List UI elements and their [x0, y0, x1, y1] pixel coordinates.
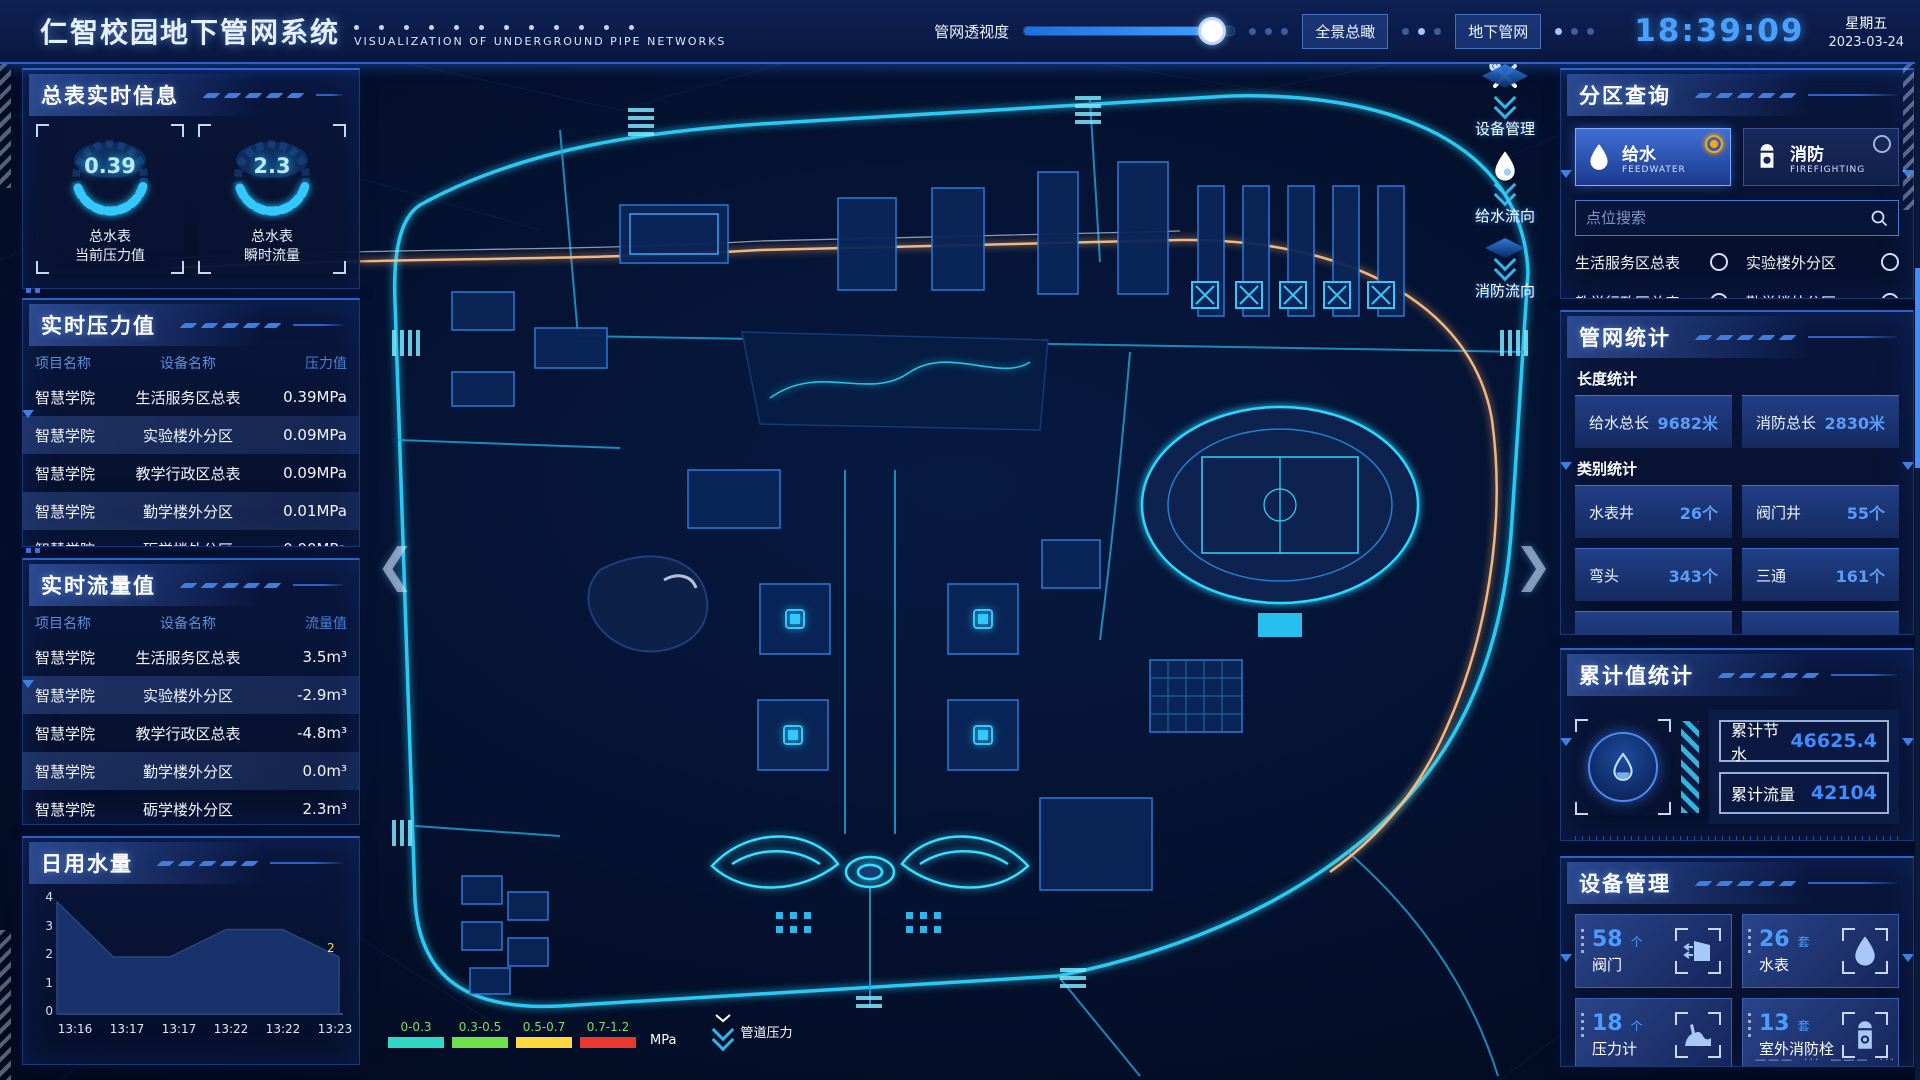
radio-unselected-icon[interactable]	[1873, 135, 1891, 153]
table-header: 项目名称设备名称流量值	[23, 608, 359, 638]
map-pan-right-arrow[interactable]: ❯	[1514, 538, 1553, 592]
slash-decoration	[1720, 673, 1817, 678]
daily-water-chart: 43 21 0 2	[23, 884, 359, 1020]
weekday: 星期五	[1845, 13, 1887, 33]
device-card-water-meter: 26套 水表	[1742, 914, 1899, 988]
legend-segment: 0.7-1.2	[580, 1020, 636, 1048]
table-row: 智慧学院实验楼外分区-2.9m³	[23, 676, 359, 714]
svg-text:2: 2	[327, 941, 335, 955]
clock: 18:39:09	[1634, 13, 1804, 49]
radio-unselected-icon[interactable]	[1710, 293, 1728, 299]
slash-decoration	[182, 583, 279, 588]
panel-title: 实时流量值	[41, 570, 156, 600]
stat-box: 阀门井55个	[1742, 485, 1899, 538]
gauge-label-line2: 瞬时流量	[198, 247, 346, 266]
pipe-opacity-slider[interactable]	[1023, 26, 1235, 36]
tab-sublabel: FEEDWATER	[1622, 165, 1686, 175]
slash-decoration	[159, 861, 256, 866]
edge-hazard-stripes	[0, 930, 11, 1080]
pressure-legend: 0-0.3 0.3-0.5 0.5-0.7 0.7-1.2 MPa 管道压力	[388, 1014, 792, 1048]
length-stats-label: 长度统计	[1577, 368, 1897, 389]
pipe-opacity-label: 管网透视度	[934, 21, 1009, 42]
zone-point-item[interactable]: 勤学楼外分区	[1746, 282, 1899, 299]
zone-point-item[interactable]: 生活服务区总表	[1575, 242, 1728, 282]
device-card-valve: 58个 阀门	[1575, 914, 1732, 988]
table-row: 智慧学院生活服务区总表0.39MPa	[23, 378, 359, 416]
table-row: 智慧学院生活服务区总表3.5m³	[23, 638, 359, 676]
slash-decoration	[1697, 93, 1794, 98]
panel-device-management: 设备管理 58个 阀门 26套 水表	[1560, 856, 1914, 1067]
panel-title: 设备管理	[1579, 868, 1671, 898]
stat-box-clipped	[1742, 611, 1899, 635]
stat-box: 消防总长2830米	[1742, 395, 1899, 448]
hydrant-icon	[1842, 1012, 1888, 1058]
pressure-gauge-icon	[1675, 1012, 1721, 1058]
tab-sublabel: FIREFIGHTING	[1790, 165, 1865, 175]
map-control-stack: 设备管理 给水流向 消防流向	[1446, 64, 1564, 305]
pipe-pressure-label: 管道压力	[740, 1022, 792, 1041]
panel-cumulative: 累计值统计 累计节水46625.4 累计流量42104	[1560, 648, 1914, 841]
gauge-label-line2: 当前压力值	[36, 247, 184, 266]
point-search-input[interactable]	[1576, 209, 1870, 227]
gauge-value: 0.39	[36, 154, 184, 178]
cumulative-saved-row: 累计节水46625.4	[1719, 720, 1889, 762]
slash-decoration	[205, 93, 302, 98]
panel-title: 管网统计	[1579, 322, 1671, 352]
water-drop-icon	[1586, 142, 1612, 172]
panel-pipe-stats: 管网统计 长度统计 给水总长9682米 消防总长2830米 类别统计 水表井26…	[1560, 310, 1914, 635]
slash-decoration	[1697, 881, 1794, 886]
cumulative-flow-row: 累计流量42104	[1719, 772, 1889, 814]
gauge-pressure-card: 0.39 总水表 当前压力值	[36, 124, 184, 274]
gauge-label-line1: 总水表	[198, 228, 346, 247]
panorama-overview-button[interactable]: 全景总瞰	[1302, 14, 1388, 49]
panel-title: 总表实时信息	[41, 80, 179, 110]
slider-fill	[1024, 27, 1209, 35]
chevron-down-icon	[714, 1014, 732, 1048]
tab-feedwater[interactable]: 给水FEEDWATER	[1575, 128, 1731, 186]
table-row: 智慧学院勤学楼外分区0.01MPa	[23, 492, 359, 530]
gauge-label-line1: 总水表	[36, 228, 184, 247]
table-row: 智慧学院勤学楼外分区0.0m³	[23, 752, 359, 790]
stat-box: 弯头343个	[1575, 548, 1732, 601]
table-row: 智慧学院教学行政区总表0.09MPa	[23, 454, 359, 492]
tick-ruler-decoration	[1575, 836, 1899, 841]
device-card-pressure-gauge: 18个 压力计	[1575, 998, 1732, 1067]
fire-flow-map-label[interactable]: 消防流向	[1475, 280, 1535, 301]
valve-icon	[1675, 928, 1721, 974]
separator-dots	[1249, 28, 1288, 35]
hazard-stripe-divider	[1681, 721, 1699, 813]
tab-label: 消防	[1790, 140, 1865, 165]
corner-dashes-decoration: ———···———···	[1755, 1053, 1896, 1066]
chart-y-axis: 43 21 0	[27, 890, 53, 1018]
zone-point-list: 生活服务区总表 实验楼外分区 教学行政区总表 勤学楼外分区 砺学楼外分区 宿舍区…	[1561, 236, 1913, 299]
panel-title: 实时压力值	[41, 310, 156, 340]
stat-box: 给水总长9682米	[1575, 395, 1732, 448]
panel-divider-dots	[26, 548, 40, 553]
zone-point-item[interactable]: 教学行政区总表	[1575, 282, 1728, 299]
search-icon[interactable]	[1870, 209, 1888, 227]
underground-pipes-button[interactable]: 地下管网	[1455, 14, 1541, 49]
area-chart-svg: 2	[53, 890, 345, 1020]
table-row: 智慧学院砺学楼外分区2.3m³	[23, 790, 359, 825]
legend-segment: 0.5-0.7	[516, 1020, 572, 1048]
page-scrollbar-track[interactable]	[1915, 62, 1920, 1080]
device-management-map-label[interactable]: 设备管理	[1475, 118, 1535, 139]
water-meter-icon	[1842, 928, 1888, 974]
panel-title: 日用水量	[41, 848, 133, 878]
stat-box-clipped	[1575, 611, 1732, 635]
table-header: 项目名称设备名称压力值	[23, 348, 359, 378]
table-row: 智慧学院实验楼外分区0.09MPa	[23, 416, 359, 454]
zone-point-item[interactable]: 实验楼外分区	[1746, 242, 1899, 282]
title-dots-decoration	[354, 25, 726, 30]
radio-unselected-icon[interactable]	[1710, 253, 1728, 271]
panel-divider-dots	[26, 288, 40, 293]
panel-realtime-pressure: 实时压力值 项目名称设备名称压力值 智慧学院生活服务区总表0.39MPa 智慧学…	[22, 298, 360, 547]
point-search-box[interactable]	[1575, 200, 1899, 236]
radio-selected-icon[interactable]	[1705, 135, 1723, 153]
slider-knob[interactable]	[1198, 17, 1226, 45]
panel-realtime-flow: 实时流量值 项目名称设备名称流量值 智慧学院生活服务区总表3.5m³ 智慧学院实…	[22, 558, 360, 825]
stat-box: 水表井26个	[1575, 485, 1732, 538]
legend-unit: MPa	[650, 1033, 676, 1048]
gauge-value: 2.3	[198, 154, 346, 178]
panel-daily-water: 日用水量 43 21 0 2 13:1613:1713:17 13:2213:2…	[22, 836, 360, 1065]
gauge-flow-card: 2.3 总水表 瞬时流量	[198, 124, 346, 274]
page-scrollbar-thumb[interactable]	[1915, 268, 1920, 468]
chart-x-axis: 13:1613:1713:17 13:2213:2213:23	[23, 1020, 359, 1036]
separator-dots	[1402, 28, 1441, 35]
water-emblem	[1575, 719, 1671, 815]
water-drop-icon	[1588, 732, 1658, 802]
slash-decoration	[182, 323, 279, 328]
panel-zone-query: 分区查询 给水FEEDWATER 消防FIREFIGHTING	[1560, 68, 1914, 299]
dashboard-screen: 仁智校园地下管网系统 VISUALIZATION OF UNDERGROUND …	[0, 0, 1920, 1080]
map-pan-left-arrow[interactable]: ❮	[376, 538, 415, 592]
top-header: 仁智校园地下管网系统 VISUALIZATION OF UNDERGROUND …	[0, 0, 1920, 64]
radio-unselected-icon[interactable]	[1881, 293, 1899, 299]
tab-label: 给水	[1622, 140, 1686, 165]
pipe-pressure-flag: 管道压力	[714, 1014, 792, 1048]
edge-hazard-stripes	[1903, 40, 1914, 210]
tab-firefighting[interactable]: 消防FIREFIGHTING	[1743, 128, 1899, 186]
separator-dots	[1555, 28, 1594, 35]
legend-segment: 0.3-0.5	[452, 1020, 508, 1048]
stat-box: 三通161个	[1742, 548, 1899, 601]
category-stats-label: 类别统计	[1577, 458, 1897, 479]
slash-decoration	[1697, 335, 1794, 340]
hydrant-icon	[1754, 142, 1780, 172]
table-row: 智慧学院教学行政区总表-4.8m³	[23, 714, 359, 752]
panel-title: 累计值统计	[1579, 660, 1694, 690]
table-row: 智慧学院砺学楼外分区0.00MPa	[23, 530, 359, 547]
feedwater-flow-map-label[interactable]: 给水流向	[1475, 205, 1535, 226]
panel-realtime-info: 总表实时信息 0.39 总水表 当前压力值	[22, 68, 360, 289]
app-subtitle: VISUALIZATION OF UNDERGROUND PIPE NETWOR…	[354, 35, 726, 48]
app-title: 仁智校园地下管网系统	[40, 11, 340, 51]
date: 2023-03-24	[1828, 35, 1904, 50]
panel-title: 分区查询	[1579, 80, 1671, 110]
legend-segment: 0-0.3	[388, 1020, 444, 1048]
radio-unselected-icon[interactable]	[1881, 253, 1899, 271]
